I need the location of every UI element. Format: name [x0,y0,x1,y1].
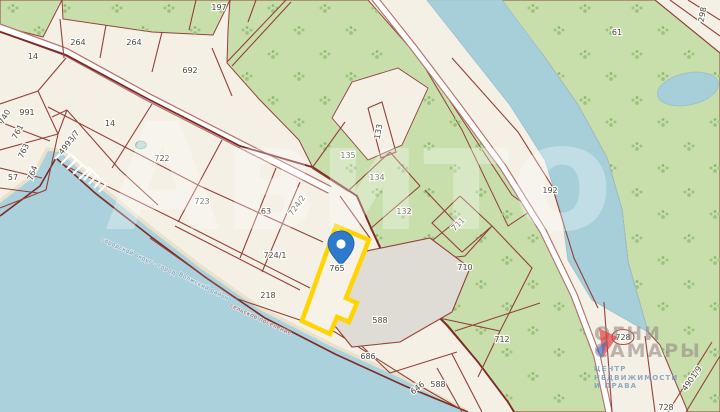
parcel-label-686: 686 [360,352,375,361]
parcel-label-722: 722 [154,154,169,163]
pin-dot [336,239,345,248]
parcel-label-264: 264 [70,38,85,47]
parcel-label-61: 61 [612,28,622,37]
parcel-label-710: 710 [457,263,472,272]
parcel-label-264: 264 [126,38,141,47]
parcel-label-728: 728 [615,333,630,342]
parcel-label-991: 991 [19,108,34,117]
parcel-label-692: 692 [182,66,197,75]
parcel-label-14: 14 [28,52,38,61]
parcel-label-728: 728 [658,403,673,412]
parcel-label-14: 14 [105,119,115,128]
parcel-label-192: 192 [542,186,557,195]
parcel-label-765: 765 [329,264,344,273]
parcel-label-63: 63 [261,207,271,216]
parcel-label-588: 588 [372,316,387,325]
parcel-label-723: 723 [194,197,209,206]
parcel-label-134: 134 [369,173,384,182]
map-canvas[interactable]: городской округ - городВолжский районсел… [0,0,720,412]
parcel-label-132: 132 [396,207,411,216]
small-pond [136,141,147,149]
parcel-label-197: 197 [211,3,226,12]
parcel-label-588: 588 [430,380,445,389]
parcel-label-724/1: 724/1 [263,251,286,260]
cadastral-map[interactable]: городской округ - городВолжский районсел… [0,0,720,412]
parcel-label-57: 57 [8,173,18,182]
parcel-label-712: 712 [494,335,509,344]
parcel-label-218: 218 [260,291,275,300]
parcel-label-135: 135 [340,151,355,160]
